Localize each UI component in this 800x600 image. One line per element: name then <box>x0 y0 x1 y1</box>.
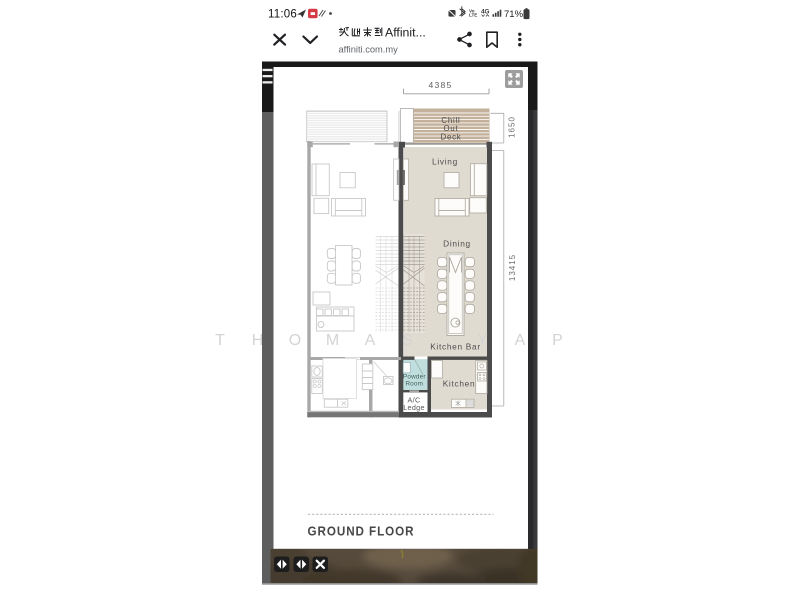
svg-text:H: H <box>252 332 264 349</box>
svg-text:Affinit...: Affinit... <box>385 25 426 39</box>
svg-text:4385: 4385 <box>429 80 453 90</box>
svg-text:Deck: Deck <box>441 133 462 142</box>
svg-text:Kitchen Bar: Kitchen Bar <box>430 342 481 352</box>
svg-text:13415: 13415 <box>508 254 517 281</box>
svg-text:M: M <box>326 332 339 349</box>
svg-text:O: O <box>289 332 301 349</box>
svg-text:T: T <box>215 332 225 349</box>
svg-text:LTE: LTE <box>469 13 477 18</box>
svg-text:A: A <box>515 332 526 349</box>
svg-text:GROUND FLOOR: GROUND FLOOR <box>308 525 415 539</box>
svg-text:11:06: 11:06 <box>268 9 297 21</box>
svg-text:Dining: Dining <box>443 239 471 249</box>
svg-text:A: A <box>365 332 376 349</box>
svg-text:Living: Living <box>432 157 458 167</box>
svg-text:4G: 4G <box>481 8 490 15</box>
svg-text:Kitchen: Kitchen <box>443 379 476 389</box>
svg-text:affiniti.com.my: affiniti.com.my <box>339 45 399 55</box>
svg-text:71%: 71% <box>504 9 524 20</box>
svg-text:P: P <box>552 332 563 349</box>
svg-text:1650: 1650 <box>508 116 517 138</box>
svg-text:Ledge: Ledge <box>403 403 425 412</box>
svg-text:Room: Room <box>405 381 423 388</box>
svg-text:Y: Y <box>477 332 488 349</box>
svg-text:S: S <box>402 332 413 349</box>
